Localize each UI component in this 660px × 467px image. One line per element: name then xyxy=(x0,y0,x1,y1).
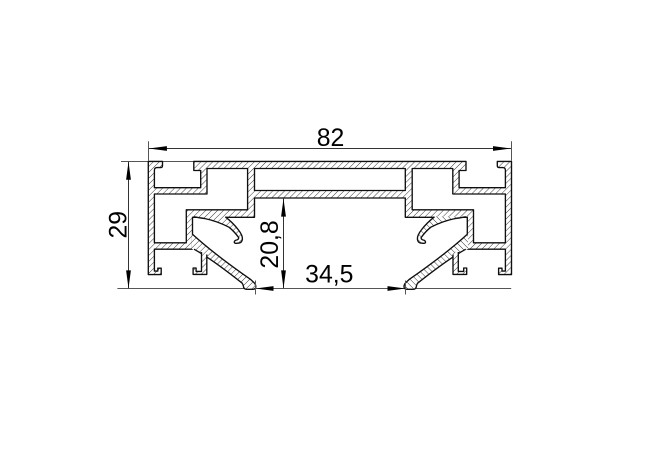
svg-text:29: 29 xyxy=(106,211,133,239)
svg-text:20,8: 20,8 xyxy=(257,220,284,268)
svg-text:82: 82 xyxy=(317,125,345,152)
svg-text:34,5: 34,5 xyxy=(305,262,353,289)
